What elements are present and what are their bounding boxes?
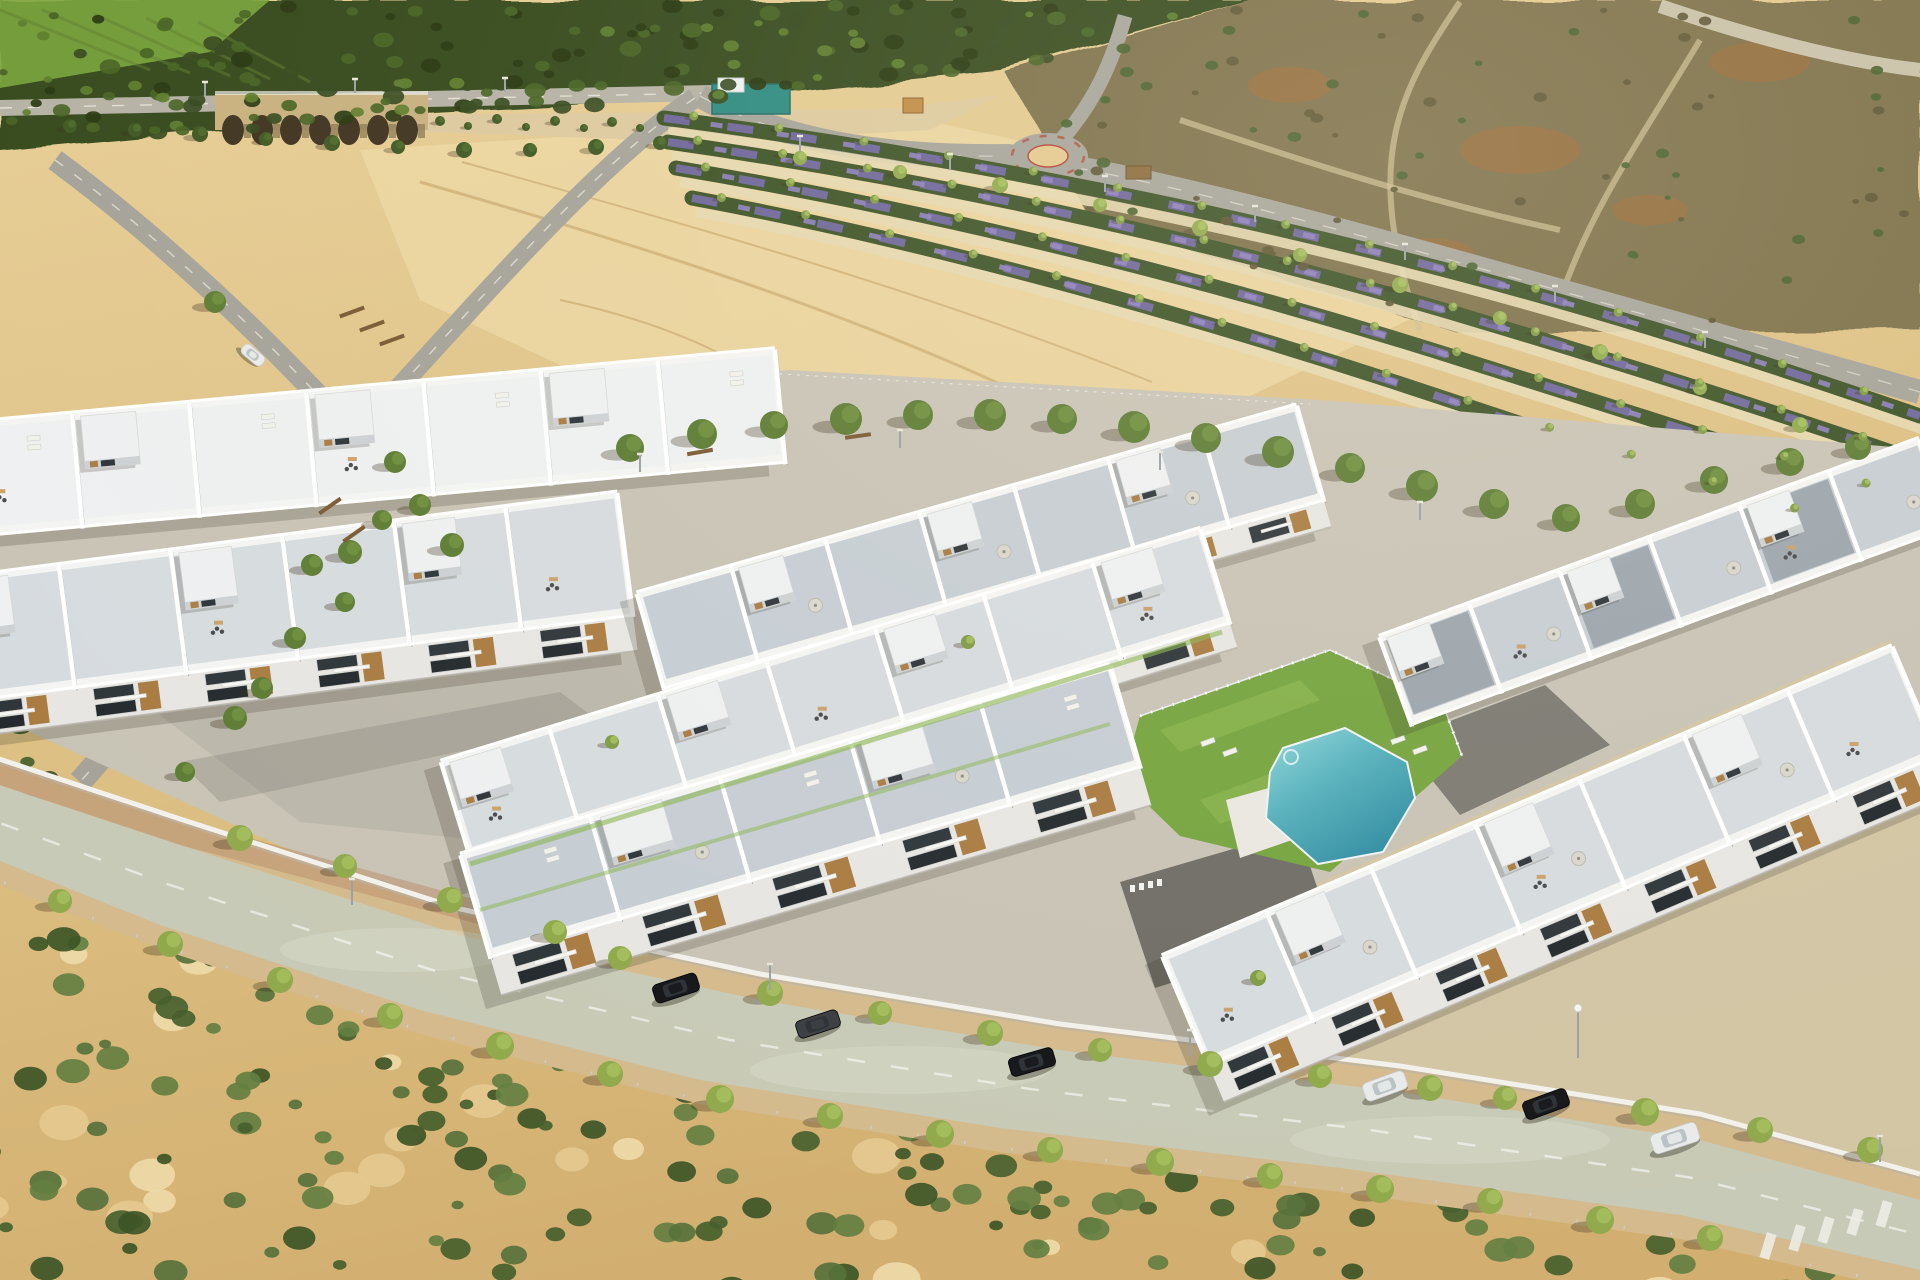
sunlight-overlay: [0, 0, 1920, 1280]
aerial-photo: [0, 0, 1920, 1280]
scene-canvas: [0, 0, 1920, 1280]
